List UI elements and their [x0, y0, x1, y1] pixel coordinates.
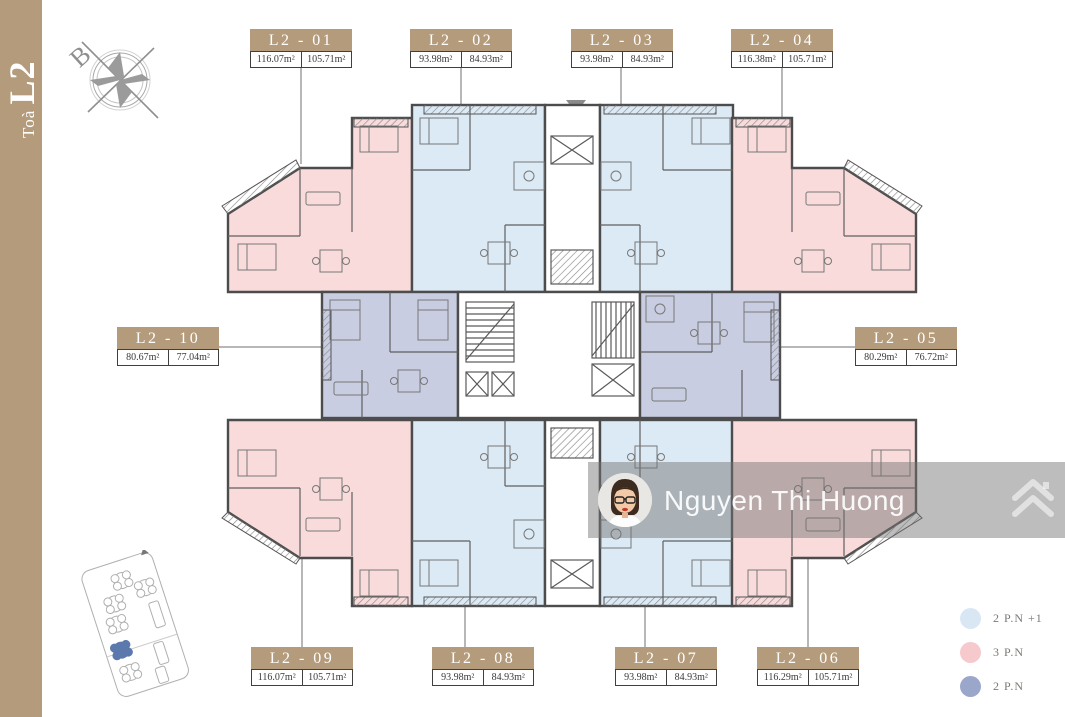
legend-label: 2 P.N +1	[993, 611, 1043, 626]
unit-area-usable: 77.04m²	[169, 350, 219, 365]
legend-label: 2 P.N	[993, 679, 1024, 694]
agent-name: Nguyen Thi Huong	[664, 485, 905, 517]
unit-area-total: 93.98m²	[616, 670, 667, 685]
unit-area-total: 80.29m²	[856, 350, 907, 365]
unit-code: L2 - 09	[251, 647, 353, 669]
legend-item-2pn-plus1: 2 P.N +1	[960, 608, 1043, 629]
unit-area-total: 93.98m²	[572, 52, 623, 67]
unit-label-l2-03: L2 - 03 93.98m²84.93m²	[571, 29, 673, 68]
unit-code: L2 - 03	[571, 29, 673, 51]
unit-shape-l2-05	[640, 292, 780, 418]
site-plan-thumbnail	[78, 550, 198, 710]
unit-code: L2 - 06	[757, 647, 859, 669]
unit-area-usable: 105.71m²	[809, 670, 859, 685]
unit-shape-l2-02	[412, 105, 545, 292]
unit-area-total: 116.07m²	[251, 52, 302, 67]
unit-area-total: 93.98m²	[411, 52, 462, 67]
legend-label: 3 P.N	[993, 645, 1024, 660]
house-chevron-logo-icon	[1008, 474, 1058, 526]
unit-area-total: 116.29m²	[758, 670, 809, 685]
unit-label-l2-08: L2 - 08 93.98m²84.93m²	[432, 647, 534, 686]
legend-swatch-3pn	[960, 642, 981, 663]
unit-code: L2 - 10	[117, 327, 219, 349]
unit-label-l2-05: L2 - 05 80.29m²76.72m²	[855, 327, 957, 366]
agent-avatar	[598, 473, 652, 527]
unit-label-l2-01: L2 - 01 116.07m²105.71m²	[250, 29, 352, 68]
unit-area-usable: 84.93m²	[667, 670, 717, 685]
avatar-portrait	[598, 473, 652, 527]
unit-label-l2-06: L2 - 06 116.29m²105.71m²	[757, 647, 859, 686]
unit-label-l2-02: L2 - 02 93.98m²84.93m²	[410, 29, 512, 68]
legend-swatch-2pn	[960, 676, 981, 697]
unit-area-usable: 105.71m²	[783, 52, 833, 67]
unit-shape-l2-09	[228, 420, 412, 606]
highlighted-building	[109, 639, 133, 660]
unit-label-l2-10: L2 - 10 80.67m²77.04m²	[117, 327, 219, 366]
unit-code: L2 - 05	[855, 327, 957, 349]
core-center	[458, 292, 640, 418]
unit-area-total: 116.07m²	[252, 670, 303, 685]
unit-code: L2 - 01	[250, 29, 352, 51]
unit-code: L2 - 07	[615, 647, 717, 669]
unit-area-total: 80.67m²	[118, 350, 169, 365]
unit-code: L2 - 08	[432, 647, 534, 669]
unit-shape-l2-03	[600, 105, 733, 292]
legend-swatch-2pn-plus1	[960, 608, 981, 629]
unit-code: L2 - 04	[731, 29, 833, 51]
unit-code: L2 - 02	[410, 29, 512, 51]
legend: 2 P.N +1 3 P.N 2 P.N	[960, 608, 1043, 710]
floorplan-page: Toà L2 B	[0, 0, 1065, 717]
unit-area-usable: 105.71m²	[302, 52, 352, 67]
unit-area-usable: 84.93m²	[462, 52, 512, 67]
unit-area-usable: 76.72m²	[907, 350, 957, 365]
unit-label-l2-07: L2 - 07 93.98m²84.93m²	[615, 647, 717, 686]
unit-area-usable: 84.93m²	[484, 670, 534, 685]
unit-area-total: 116.38m²	[732, 52, 783, 67]
unit-shape-l2-08	[412, 420, 545, 606]
unit-area-usable: 84.93m²	[623, 52, 673, 67]
legend-item-3pn: 3 P.N	[960, 642, 1043, 663]
unit-label-l2-04: L2 - 04 116.38m²105.71m²	[731, 29, 833, 68]
unit-area-total: 93.98m²	[433, 670, 484, 685]
unit-area-usable: 105.71m²	[303, 670, 353, 685]
legend-item-2pn: 2 P.N	[960, 676, 1043, 697]
unit-label-l2-09: L2 - 09 116.07m²105.71m²	[251, 647, 353, 686]
